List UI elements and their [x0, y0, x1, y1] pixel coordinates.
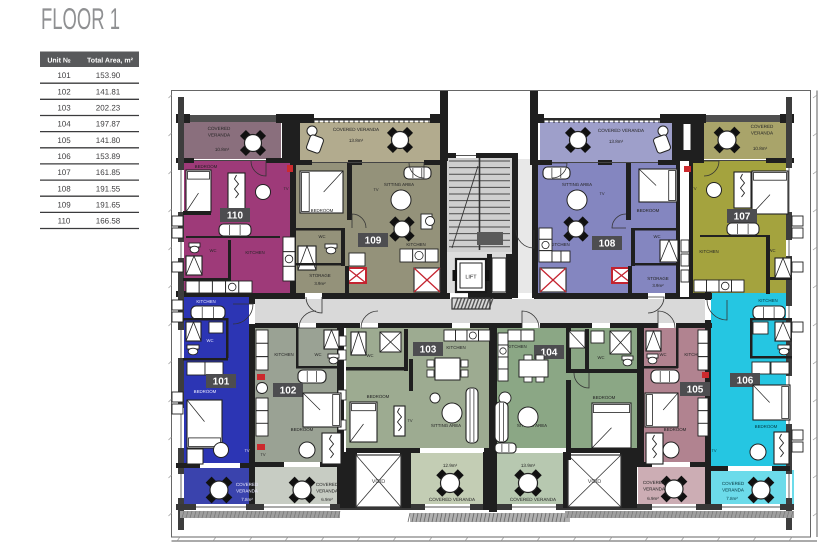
svg-text:KITCHEN: KITCHEN	[446, 345, 465, 350]
svg-text:COVERED VERANDA: COVERED VERANDA	[429, 497, 476, 502]
svg-text:VOID: VOID	[588, 479, 601, 485]
svg-text:TV: TV	[599, 191, 604, 196]
svg-text:191.65: 191.65	[96, 200, 121, 209]
svg-text:107: 107	[734, 212, 751, 223]
svg-text:104: 104	[57, 120, 71, 129]
svg-text:WC: WC	[319, 234, 326, 239]
svg-text:VERANDA: VERANDA	[751, 131, 774, 136]
svg-text:WC: WC	[367, 353, 374, 358]
svg-text:109: 109	[57, 200, 71, 209]
svg-text:3.9m²: 3.9m²	[652, 283, 664, 288]
svg-text:108: 108	[57, 184, 71, 193]
svg-text:153.89: 153.89	[96, 152, 121, 161]
svg-text:FLOOR 1: FLOOR 1	[41, 3, 120, 36]
svg-text:166.58: 166.58	[96, 217, 121, 226]
svg-text:10.8m²: 10.8m²	[753, 146, 768, 151]
svg-text:BEDROOM: BEDROOM	[291, 427, 314, 432]
svg-text:KITCHEN: KITCHEN	[699, 249, 718, 254]
svg-text:12.9m²: 12.9m²	[443, 463, 458, 468]
svg-text:COVERED: COVERED	[316, 482, 339, 487]
svg-text:TV: TV	[283, 186, 288, 191]
svg-text:VERANDA: VERANDA	[643, 487, 665, 492]
svg-text:109: 109	[365, 236, 382, 247]
svg-text:TV: TV	[244, 448, 249, 453]
svg-text:VERANDA: VERANDA	[208, 133, 231, 138]
svg-text:197.87: 197.87	[96, 120, 121, 129]
svg-text:BEDROOM: BEDROOM	[755, 424, 778, 429]
svg-text:101: 101	[213, 377, 230, 388]
svg-text:BEDROOM: BEDROOM	[637, 208, 660, 213]
svg-text:SITTING AREA: SITTING AREA	[431, 423, 461, 428]
svg-text:BEDROOM: BEDROOM	[311, 208, 334, 213]
svg-text:VERANDA: VERANDA	[236, 489, 258, 494]
svg-text:STORAGE: STORAGE	[647, 276, 668, 281]
svg-text:3.9m²: 3.9m²	[314, 281, 326, 286]
svg-text:VOID: VOID	[372, 479, 385, 485]
svg-text:KITCHEN: KITCHEN	[550, 242, 569, 247]
svg-text:7.8m²: 7.8m²	[726, 496, 738, 501]
svg-text:WC: WC	[207, 338, 214, 343]
svg-text:COVERED: COVERED	[722, 481, 745, 486]
svg-text:BEDROOM: BEDROOM	[664, 427, 687, 432]
svg-text:WC: WC	[598, 355, 605, 360]
svg-text:COVERED: COVERED	[643, 480, 666, 485]
svg-text:7.8m²: 7.8m²	[241, 497, 253, 502]
svg-text:WC: WC	[315, 352, 322, 357]
svg-text:BEDROOM: BEDROOM	[194, 389, 217, 394]
svg-text:105: 105	[57, 136, 71, 145]
svg-text:6.9m²: 6.9m²	[321, 497, 333, 502]
svg-text:KITCHEN: KITCHEN	[196, 299, 215, 304]
svg-text:STORAGE: STORAGE	[309, 273, 330, 278]
svg-text:106: 106	[737, 376, 754, 387]
svg-text:102: 102	[57, 87, 71, 96]
svg-text:102: 102	[280, 386, 297, 397]
svg-text:SITTING AREA: SITTING AREA	[384, 182, 414, 187]
svg-text:BEDROOM: BEDROOM	[367, 394, 390, 399]
svg-text:VERANDA: VERANDA	[722, 488, 744, 493]
svg-text:105: 105	[687, 385, 704, 396]
svg-text:6.9m²: 6.9m²	[647, 496, 659, 501]
svg-text:Total Area, m²: Total Area, m²	[87, 57, 134, 65]
svg-text:110: 110	[227, 211, 244, 222]
svg-text:COVERED: COVERED	[208, 126, 231, 131]
svg-text:TV: TV	[373, 187, 378, 192]
svg-text:106: 106	[57, 152, 71, 161]
svg-text:TV: TV	[691, 186, 696, 191]
svg-text:153.90: 153.90	[96, 71, 121, 80]
svg-text:141.81: 141.81	[96, 87, 121, 96]
svg-text:191.55: 191.55	[96, 184, 121, 193]
svg-text:161.85: 161.85	[96, 168, 121, 177]
svg-text:110: 110	[58, 217, 71, 226]
svg-text:103: 103	[57, 104, 71, 113]
svg-text:103: 103	[420, 345, 437, 356]
svg-text:KITCHEN: KITCHEN	[274, 352, 293, 357]
svg-text:KITCHEN: KITCHEN	[507, 344, 526, 349]
svg-text:WC: WC	[210, 248, 217, 253]
svg-text:WC: WC	[654, 234, 661, 239]
svg-text:TV: TV	[260, 452, 265, 457]
svg-text:COVERED: COVERED	[751, 124, 774, 129]
svg-text:SITTING AREA: SITTING AREA	[562, 182, 592, 187]
svg-text:141.80: 141.80	[96, 136, 121, 145]
svg-text:VERANDA: VERANDA	[316, 489, 338, 494]
svg-text:BEDROOM: BEDROOM	[593, 395, 616, 400]
svg-text:101: 101	[57, 71, 71, 80]
svg-text:13.8m²: 13.8m²	[349, 138, 364, 143]
svg-text:KITCHEN: KITCHEN	[758, 298, 777, 303]
svg-text:107: 107	[57, 168, 71, 177]
svg-text:BEDROOM: BEDROOM	[195, 164, 218, 169]
svg-text:TV: TV	[711, 448, 716, 453]
svg-text:KITCHEN: KITCHEN	[406, 242, 425, 247]
svg-text:13.9m²: 13.9m²	[521, 463, 536, 468]
svg-text:WC: WC	[660, 352, 667, 357]
svg-text:COVERED VERANDA: COVERED VERANDA	[510, 497, 557, 502]
svg-text:LIFT: LIFT	[465, 275, 477, 281]
svg-text:13.8m²: 13.8m²	[609, 139, 624, 144]
svg-text:10.8m²: 10.8m²	[215, 147, 230, 152]
svg-text:COVERED: COVERED	[236, 482, 259, 487]
svg-text:TV: TV	[407, 418, 412, 423]
svg-text:KITCHEN: KITCHEN	[245, 250, 264, 255]
svg-text:Unit №: Unit №	[47, 57, 71, 65]
svg-text:202.23: 202.23	[96, 104, 121, 113]
svg-text:COVERED VERANDA: COVERED VERANDA	[598, 128, 645, 133]
svg-text:COVERED VERANDA: COVERED VERANDA	[333, 127, 380, 132]
svg-text:108: 108	[599, 239, 616, 250]
